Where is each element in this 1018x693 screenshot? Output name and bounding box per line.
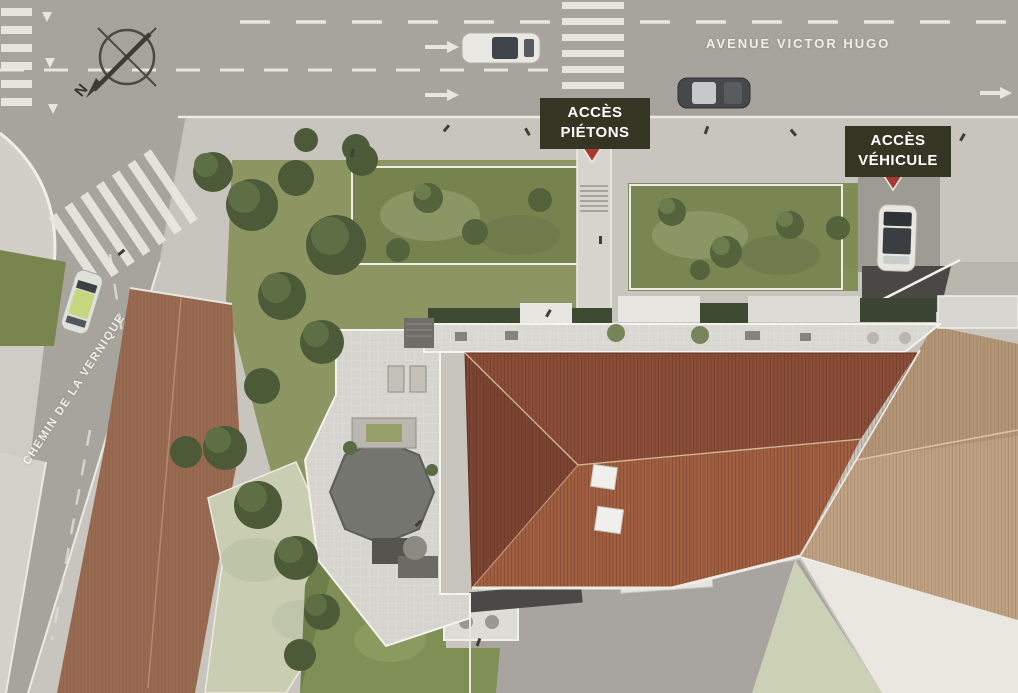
site-plan-drawing (0, 0, 1018, 693)
pedestrian-access-line1: ACCÈS (567, 104, 622, 121)
street-label-avenue: AVENUE VICTOR HUGO (706, 36, 890, 51)
pedestrian-path (577, 148, 611, 332)
vehicle-access-line1: ACCÈS (870, 132, 925, 149)
pedestrian-access-label: ACCÈS PIÉTONS (540, 98, 650, 149)
car-dark-avenue (678, 78, 750, 108)
vehicle-access-label: ACCÈS VÉHICULE (845, 126, 951, 177)
pedestrian-access-line2: PIÉTONS (560, 124, 629, 141)
site-plan: AVENUE VICTOR HUGO CHEMIN DE LA VERNIQUE… (0, 0, 1018, 693)
car-driveway (877, 204, 917, 271)
vehicle-access-line2: VÉHICULE (858, 152, 938, 169)
car-white-avenue (462, 33, 540, 63)
pergola-octagon (330, 440, 434, 544)
